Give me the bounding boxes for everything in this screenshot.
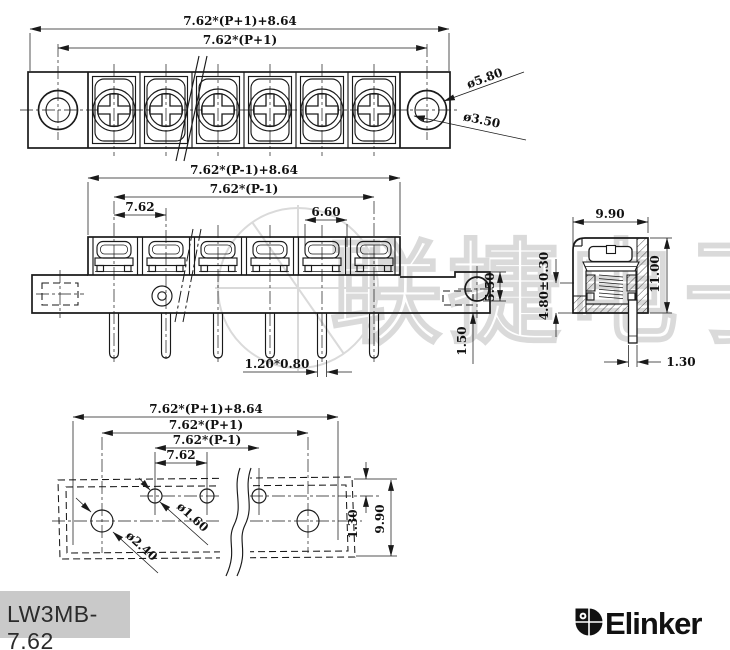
top-leader-outer-dia: ø5.80	[444, 65, 524, 101]
dim-label: 7.62*(P+1)+8.64	[149, 402, 263, 416]
front-dim-overall: 7.62*(P-1)+8.64	[88, 163, 400, 235]
dim-label: 6.60	[311, 205, 340, 219]
bottom-dim-depth: 9.90	[356, 480, 397, 556]
front-dim-pitch: 7.62	[114, 200, 166, 215]
top-view: 7.62*(P+1)+8.64 7.62*(P+1)	[20, 14, 526, 161]
bottom-dim-pin-span: 7.62*(P-1)	[155, 433, 259, 448]
bottom-leader-mount-hole: ø2.40	[76, 498, 160, 573]
dim-label: 7.62*(P-1)+8.64	[190, 163, 298, 177]
bottom-leader-pin-hole: ø1.60	[139, 478, 211, 545]
drawing-sheet: 联捷电子 7.62*(P+1)+8.64 7.62*(P+1)	[0, 0, 730, 650]
bottom-dim-mount-centers: 7.62*(P+1)	[102, 418, 308, 433]
dim-label: 5.50	[483, 272, 497, 301]
dim-label: 1.20*0.80	[245, 357, 310, 371]
bottom-dim-pitch: 7.62	[155, 448, 207, 463]
dim-label: ø1.60	[174, 499, 211, 534]
brand-logo-text: Elinker	[605, 606, 702, 641]
dim-label: 11.00	[648, 255, 662, 293]
dim-label: 7.62*(P+1)	[203, 33, 277, 47]
bottom-view: 7.62*(P+1)+8.64 7.62*(P+1) 7.62*(P-1) 7.…	[52, 402, 397, 576]
watermark-text: 联捷电子	[330, 229, 730, 359]
top-leader-inner-dia: ø3.50	[414, 109, 526, 140]
top-dim-hole-centers: 7.62*(P+1)	[58, 33, 427, 48]
technical-drawing: 联捷电子 7.62*(P+1)+8.64 7.62*(P+1)	[0, 0, 730, 650]
dim-label: 7.62	[125, 200, 154, 214]
dim-label: 4.80±0.30	[537, 252, 551, 321]
model-number: LW3MB-7.62	[7, 601, 130, 650]
front-dim-pin-span: 7.62*(P-1)	[114, 182, 374, 197]
dim-label: 7.62*(P-1)	[210, 182, 279, 196]
brand-logo: Elinker	[574, 606, 702, 641]
front-dim-pin-section: 1.20*0.80	[243, 357, 352, 377]
side-pin	[629, 300, 638, 343]
brand-logo-icon	[574, 607, 604, 637]
dim-label: 7.62*(P+1)+8.64	[183, 14, 297, 28]
dim-label: 1.30	[346, 509, 360, 538]
dim-label: 9.90	[595, 207, 624, 221]
model-label-plate: LW3MB-7.62	[0, 591, 130, 638]
dim-label: 7.62*(P+1)	[169, 418, 243, 432]
dim-label: 9.90	[373, 504, 387, 533]
dim-label: 1.50	[455, 326, 469, 355]
dim-label: 1.30	[666, 355, 695, 369]
dim-label: 7.62	[166, 448, 195, 462]
dim-label: ø5.80	[465, 65, 505, 91]
dim-label: 7.62*(P-1)	[173, 433, 242, 447]
bottom-dim-edge-to-row: 1.30	[346, 462, 397, 539]
